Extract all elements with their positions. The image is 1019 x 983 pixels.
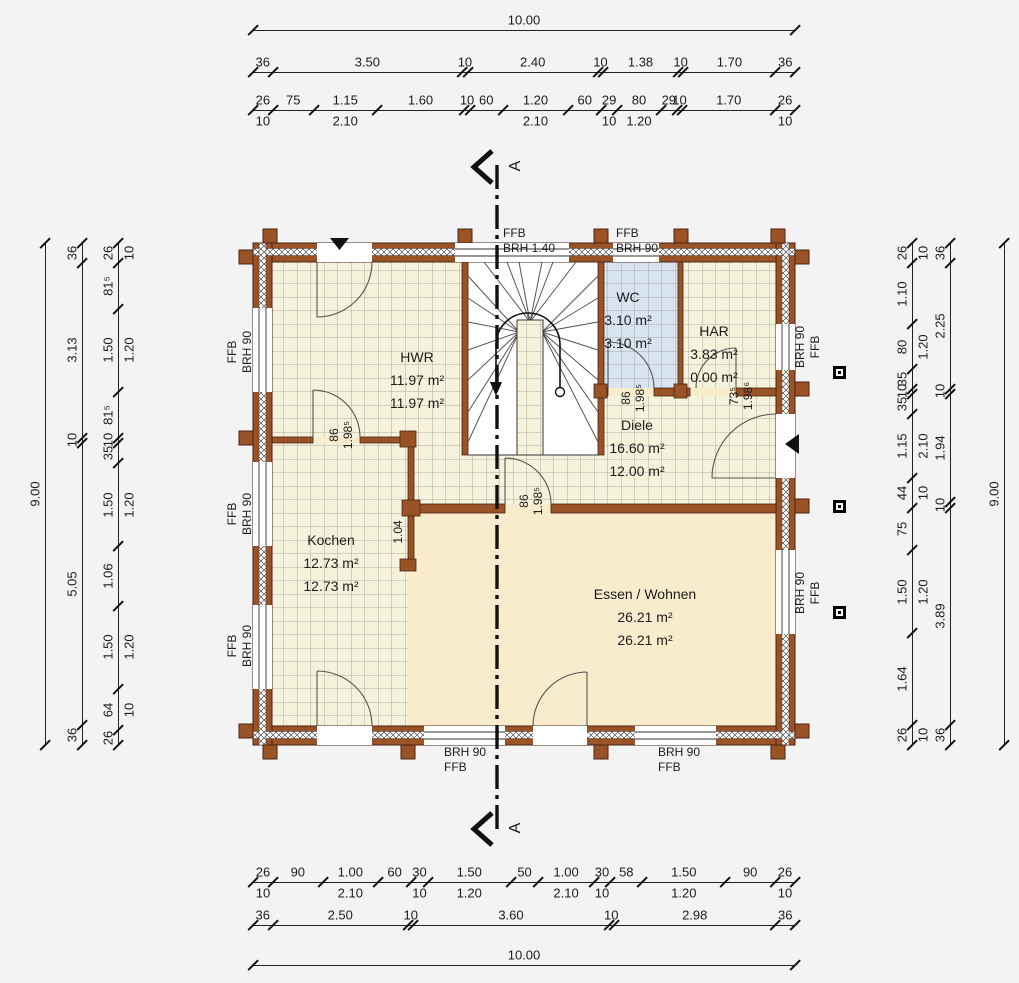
window-label-top-2: FFB BRH 90 (616, 226, 658, 256)
room-area: 11.97 m² (347, 392, 487, 415)
dim-sub-value: 1.20 (122, 338, 137, 363)
dim-value: 1.15 (333, 93, 358, 108)
room-area: 11.97 m² (347, 369, 487, 392)
dim-value: 81⁵ (101, 276, 116, 296)
window-label-line: BRH 90 (444, 745, 486, 760)
dim-sub-value: 10 (412, 886, 426, 901)
door-height: 1.98⁶ (741, 382, 755, 410)
dim-value: 3.60 (498, 908, 523, 923)
dim-value: 26 (101, 731, 116, 745)
dim-sub-value: 10 (256, 886, 270, 901)
dim-sub-value: 10 (916, 728, 931, 742)
door-width: 86 (619, 391, 633, 404)
dim-value: 36 (256, 55, 270, 70)
door-label-hwr: 86 1.98⁵ (327, 421, 355, 449)
dim-value: 10 (673, 55, 687, 70)
dim-sub-value: 2.10 (333, 114, 358, 129)
dim-value: 9.00 (987, 481, 1002, 506)
dim-value: 80 (632, 93, 646, 108)
dim-chain-line (950, 243, 951, 745)
dim-chain-line (253, 965, 795, 966)
window-left-3 (253, 605, 272, 689)
dim-value: 10 (458, 55, 472, 70)
dim-value: 36 (65, 728, 80, 742)
dim-sub-value: 2.10 (523, 114, 548, 129)
dim-value: 10.00 (508, 13, 541, 28)
dim-chain-line (253, 30, 795, 31)
wall-length: 1.04 (391, 520, 405, 543)
dim-sub-value: 10 (256, 114, 270, 129)
dim-value: 2.50 (328, 908, 353, 923)
partition-wall-label: 1.04 (391, 520, 405, 543)
window-label-bottom-2: BRH 90 FFB (658, 745, 700, 775)
dim-value: 10 (403, 908, 417, 923)
dim-value: 2.98 (682, 908, 707, 923)
dim-value: 36 (933, 246, 948, 260)
dim-sub-value: 10 (916, 486, 931, 500)
door-width: 73⁵ (727, 387, 741, 405)
dim-value: 10 (604, 908, 618, 923)
dim-value: 30 (595, 865, 609, 880)
dim-value: 35 (895, 397, 910, 411)
dim-value: 10 (672, 93, 686, 108)
window-label-right-2: BRH 90 FFB (793, 572, 823, 614)
dim-value: 60 (479, 93, 493, 108)
dim-sub-value: 10 (916, 246, 931, 260)
room-label-essen-wohnen: Essen / Wohnen 26.21 m² 26.21 m² (555, 583, 735, 652)
window-label-line: BRH 90 (240, 493, 255, 535)
dim-value: 36 (778, 908, 792, 923)
dim-value: 60 (387, 865, 401, 880)
section-arrow-top-icon (474, 151, 492, 183)
dim-sub-value: 1.20 (122, 635, 137, 660)
dim-sub-value: 10 (778, 886, 792, 901)
dim-chain-line (253, 72, 795, 73)
room-area: 26.21 m² (555, 606, 735, 629)
door-label-diele: 86 1.98⁵ (517, 487, 545, 515)
dim-value: 26 (256, 865, 270, 880)
dim-chain-line (253, 110, 795, 111)
floorplan-page: HWR 11.97 m² 11.97 m² WC 3.10 m² 3.10 m²… (0, 0, 1019, 983)
window-label-line: BRH 90 (793, 326, 808, 368)
window-label-line: BRH 90 (616, 241, 658, 256)
dim-chain-line (253, 882, 795, 883)
dim-sub-value: 10 (602, 114, 616, 129)
dim-sub-value: 2.10 (338, 886, 363, 901)
door-width: 86 (517, 494, 531, 507)
window-label-line: FFB (503, 226, 555, 241)
window-label-line: FFB (225, 503, 240, 526)
dim-sub-value: 2.10 (916, 433, 931, 458)
window-label-top-1: FFB BRH 1.40 (503, 226, 555, 256)
window-left-1 (253, 308, 272, 392)
dim-value: 80 (895, 340, 910, 354)
room-label-hwr: HWR 11.97 m² 11.97 m² (347, 346, 487, 415)
window-label-line: BRH 90 (240, 625, 255, 667)
dim-sub-value: 10 (595, 886, 609, 901)
dim-value: 1.60 (408, 93, 433, 108)
marker-squares (833, 366, 846, 619)
dim-value: 1.50 (101, 635, 116, 660)
dim-chain-line (118, 243, 119, 745)
room-name: Kochen (261, 529, 401, 552)
dim-value: 26 (778, 865, 792, 880)
room-area: 12.73 m² (261, 552, 401, 575)
dim-value: 1.50 (101, 338, 116, 363)
window-label-left-1: FFB BRH 90 (225, 331, 255, 373)
section-letter-bottom: A (507, 823, 525, 834)
dim-value: 1.38 (628, 55, 653, 70)
room-label-har: HAR 3.83 m² 0.00 m² (654, 320, 774, 389)
dim-value: 1.20 (523, 93, 548, 108)
window-label-line: BRH 90 (240, 331, 255, 373)
door-bottom-terrace-opening (533, 726, 587, 745)
dim-value: 1.50 (671, 865, 696, 880)
dim-chain-line (82, 243, 83, 745)
dim-value: 26 (778, 93, 792, 108)
dim-sub-value: 2.10 (553, 886, 578, 901)
dim-value: 90 (291, 865, 305, 880)
dim-value: 10 (933, 384, 948, 398)
dim-sub-value: 1.20 (626, 114, 651, 129)
dim-value: 1.50 (101, 492, 116, 517)
window-label-line: BRH 1.40 (503, 241, 555, 256)
dim-value: 75 (286, 93, 300, 108)
dim-value: 1.15 (895, 433, 910, 458)
floorplan-drawing (0, 0, 1019, 983)
window-label-line: FFB (808, 336, 823, 359)
door-height: 1.98⁵ (531, 487, 545, 515)
door-label-har: 73⁵ 1.98⁶ (727, 382, 755, 410)
dim-value: 44 (895, 486, 910, 500)
room-area: 16.60 m² (577, 437, 697, 460)
dim-value: 60 (578, 93, 592, 108)
dim-chain-line (253, 925, 795, 926)
dim-sub-value: 1.20 (122, 492, 137, 517)
room-name: Diele (577, 414, 697, 437)
dim-value: 90 (743, 865, 757, 880)
dim-value: 64 (101, 703, 116, 717)
dim-value: 1.50 (457, 865, 482, 880)
dim-value: 1.70 (717, 55, 742, 70)
window-label-line: BRH 90 (658, 745, 700, 760)
dim-sub-value: 1.20 (916, 334, 931, 359)
dim-value: 10 (593, 55, 607, 70)
dim-chain-line (912, 243, 913, 745)
door-label-wc: 86 1.98⁵ (619, 384, 647, 412)
window-label-line: BRH 90 (793, 572, 808, 614)
dim-value: 81⁵ (101, 405, 116, 425)
stair-walk-start (556, 388, 565, 397)
dim-value: 1.94 (933, 436, 948, 461)
dim-value: 1.50 (895, 579, 910, 604)
section-arrow-bottom-icon (474, 813, 492, 845)
dim-value: 50 (517, 865, 531, 880)
dim-sub-value: 10 (122, 246, 137, 260)
dim-chain-line (1004, 243, 1005, 745)
room-label-diele: Diele 16.60 m² 12.00 m² (577, 414, 697, 483)
dim-value: 3.13 (65, 338, 80, 363)
dim-value: 9.00 (28, 481, 43, 506)
room-name: WC (568, 286, 688, 309)
dim-value: 26 (101, 246, 116, 260)
dim-value: 30 (412, 865, 426, 880)
dim-sub-value: 1.20 (457, 886, 482, 901)
marker-square-icon (833, 500, 846, 513)
dim-value: 2.25 (933, 313, 948, 338)
dim-value: 3.50 (355, 55, 380, 70)
dim-sub-value: 1.20 (916, 579, 931, 604)
dim-value: 1.06 (101, 563, 116, 588)
dim-value: 3.89 (933, 604, 948, 629)
room-area: 12.00 m² (577, 460, 697, 483)
door-bottom-kochen-opening (317, 726, 372, 745)
entry-door-top-opening (317, 243, 372, 262)
dim-value: 1.10 (895, 281, 910, 306)
room-name: HAR (654, 320, 774, 343)
marker-square-icon (833, 366, 846, 379)
window-label-line: FFB (808, 582, 823, 605)
dim-value: 10.00 (508, 948, 541, 963)
room-name: HWR (347, 346, 487, 369)
door-height: 1.98⁵ (341, 421, 355, 449)
dim-value: 36 (256, 908, 270, 923)
dim-value: 1.64 (895, 667, 910, 692)
room-area: 26.21 m² (555, 629, 735, 652)
section-letter-top: A (507, 161, 525, 172)
window-label-left-2: FFB BRH 90 (225, 493, 255, 535)
window-label-line: FFB (444, 760, 486, 775)
dim-value: 1.00 (553, 865, 578, 880)
dim-chain-line (45, 243, 46, 745)
dim-value: 36 (65, 246, 80, 260)
dim-value: 35 (101, 446, 116, 460)
dim-value: 10 (65, 433, 80, 447)
room-area: 12.73 m² (261, 575, 401, 598)
dim-value: 5.05 (65, 571, 80, 596)
door-width: 86 (327, 428, 341, 441)
dim-sub-value: 1.20 (671, 886, 696, 901)
window-label-line: FFB (616, 226, 658, 241)
dim-sub-value: 10 (778, 114, 792, 129)
door-height: 1.98⁵ (633, 384, 647, 412)
dim-value: 10 (933, 498, 948, 512)
window-bottom-2 (635, 726, 716, 745)
window-label-bottom-1: BRH 90 FFB (444, 745, 486, 775)
dim-value: 1.00 (338, 865, 363, 880)
window-label-line: FFB (225, 635, 240, 658)
room-name: Essen / Wohnen (555, 583, 735, 606)
window-label-left-3: FFB BRH 90 (225, 625, 255, 667)
room-label-kochen: Kochen 12.73 m² 12.73 m² (261, 529, 401, 598)
dim-value: 2.40 (520, 55, 545, 70)
room-area: 0.00 m² (654, 366, 774, 389)
window-label-line: FFB (658, 760, 700, 775)
marker-square-icon (833, 606, 846, 619)
dim-value: 36 (778, 55, 792, 70)
dim-sub-value: 10 (122, 703, 137, 717)
window-bottom-1 (424, 726, 505, 745)
window-label-right-1: BRH 90 FFB (793, 326, 823, 368)
dim-value: 75 (895, 522, 910, 536)
dim-value: 36 (933, 728, 948, 742)
dim-value: 10 (460, 93, 474, 108)
dim-value: 58 (619, 865, 633, 880)
dim-value: 29 (602, 93, 616, 108)
room-area: 3.83 m² (654, 343, 774, 366)
dim-value: 26 (895, 728, 910, 742)
window-label-line: FFB (225, 341, 240, 364)
dim-value: 26 (895, 246, 910, 260)
dim-value: 1.70 (716, 93, 741, 108)
dim-value: 26 (256, 93, 270, 108)
